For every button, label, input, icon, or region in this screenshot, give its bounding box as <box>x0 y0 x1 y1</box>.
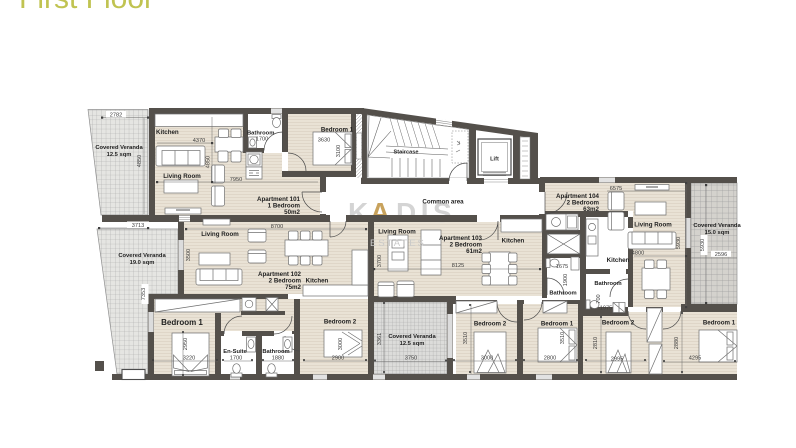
svg-text:Living Room: Living Room <box>201 231 239 238</box>
svg-text:50m2: 50m2 <box>284 209 300 216</box>
svg-text:Lift: Lift <box>490 157 499 163</box>
svg-text:En-Suite: En-Suite <box>223 349 247 355</box>
svg-text:1880: 1880 <box>272 356 284 362</box>
svg-text:Bedroom 2: Bedroom 2 <box>474 321 507 328</box>
svg-text:3510: 3510 <box>463 332 469 344</box>
svg-text:4800: 4800 <box>632 251 644 257</box>
svg-text:3100: 3100 <box>336 145 342 157</box>
svg-text:Common area: Common area <box>422 199 464 206</box>
svg-text:Covered Veranda: Covered Veranda <box>388 334 436 340</box>
svg-text:Kitchen: Kitchen <box>607 257 630 264</box>
svg-text:75m2: 75m2 <box>285 284 301 291</box>
svg-text:2782: 2782 <box>110 113 122 119</box>
svg-text:Bedroom 1: Bedroom 1 <box>541 321 574 328</box>
svg-text:1975: 1975 <box>600 306 612 312</box>
svg-text:Bathroom: Bathroom <box>262 349 289 355</box>
svg-text:7353: 7353 <box>141 288 147 300</box>
svg-text:1700: 1700 <box>256 137 268 143</box>
svg-text:Bedroom 2: Bedroom 2 <box>324 319 357 326</box>
svg-text:Bathroom: Bathroom <box>549 291 576 297</box>
svg-text:5930: 5930 <box>676 237 682 249</box>
svg-text:4850: 4850 <box>206 156 212 168</box>
svg-text:5930: 5930 <box>700 239 706 251</box>
svg-text:2800: 2800 <box>544 356 556 362</box>
svg-text:61m2: 61m2 <box>466 248 482 255</box>
svg-text:6575: 6575 <box>610 186 622 192</box>
svg-text:8700: 8700 <box>271 224 283 230</box>
svg-text:2950: 2950 <box>183 338 189 350</box>
svg-text:Living Room: Living Room <box>378 229 416 236</box>
svg-text:2995: 2995 <box>611 357 623 363</box>
svg-text:Living Room: Living Room <box>163 173 201 180</box>
svg-text:3000: 3000 <box>481 356 493 362</box>
svg-text:12.5 sqm: 12.5 sqm <box>107 152 132 158</box>
svg-text:3510: 3510 <box>560 332 566 344</box>
svg-text:2810: 2810 <box>593 337 599 349</box>
svg-text:Covered Veranda: Covered Veranda <box>95 145 143 151</box>
svg-text:1700: 1700 <box>230 356 242 362</box>
svg-text:Living Room: Living Room <box>634 222 672 229</box>
svg-text:700: 700 <box>596 294 602 303</box>
svg-text:1900: 1900 <box>563 274 569 286</box>
svg-text:19.0 sqm: 19.0 sqm <box>130 260 155 266</box>
svg-text:63m2: 63m2 <box>583 206 599 213</box>
svg-text:3000: 3000 <box>338 338 344 350</box>
svg-text:Covered Veranda: Covered Veranda <box>693 223 741 229</box>
svg-text:Staircase: Staircase <box>394 150 419 156</box>
svg-text:3700: 3700 <box>377 255 383 267</box>
svg-text:2596: 2596 <box>715 252 727 258</box>
svg-text:Kitchen: Kitchen <box>156 129 179 136</box>
svg-text:2900: 2900 <box>332 356 344 362</box>
svg-text:Covered Veranda: Covered Veranda <box>118 253 166 259</box>
svg-text:8125: 8125 <box>452 263 464 269</box>
svg-text:3500: 3500 <box>186 249 192 261</box>
svg-text:3220: 3220 <box>183 356 195 362</box>
svg-text:Bedroom 2: Bedroom 2 <box>602 320 635 327</box>
svg-text:3713: 3713 <box>132 223 144 229</box>
svg-text:Bedroom 1: Bedroom 1 <box>321 127 354 134</box>
svg-text:7950: 7950 <box>230 177 242 183</box>
svg-text:4370: 4370 <box>193 138 205 144</box>
svg-text:Bedroom 1: Bedroom 1 <box>703 320 736 327</box>
svg-text:First Floor: First Floor <box>19 0 154 15</box>
svg-text:Kitchen: Kitchen <box>306 278 329 285</box>
svg-text:2880: 2880 <box>674 337 680 349</box>
svg-text:Bathroom: Bathroom <box>594 281 621 287</box>
svg-text:15.0 sqm: 15.0 sqm <box>705 230 730 236</box>
svg-text:3750: 3750 <box>405 356 417 362</box>
svg-text:Bedroom 1: Bedroom 1 <box>161 318 203 327</box>
svg-text:ESTATES: ESTATES <box>370 238 426 249</box>
svg-text:3361: 3361 <box>377 333 383 345</box>
svg-text:1675: 1675 <box>556 264 568 270</box>
svg-text:4295: 4295 <box>689 356 701 362</box>
svg-text:3630: 3630 <box>318 138 330 144</box>
svg-text:4850: 4850 <box>137 155 143 167</box>
svg-text:Kitchen: Kitchen <box>502 238 525 245</box>
svg-text:Bathroom: Bathroom <box>247 131 274 137</box>
svg-text:12.5 sqm: 12.5 sqm <box>400 341 425 347</box>
